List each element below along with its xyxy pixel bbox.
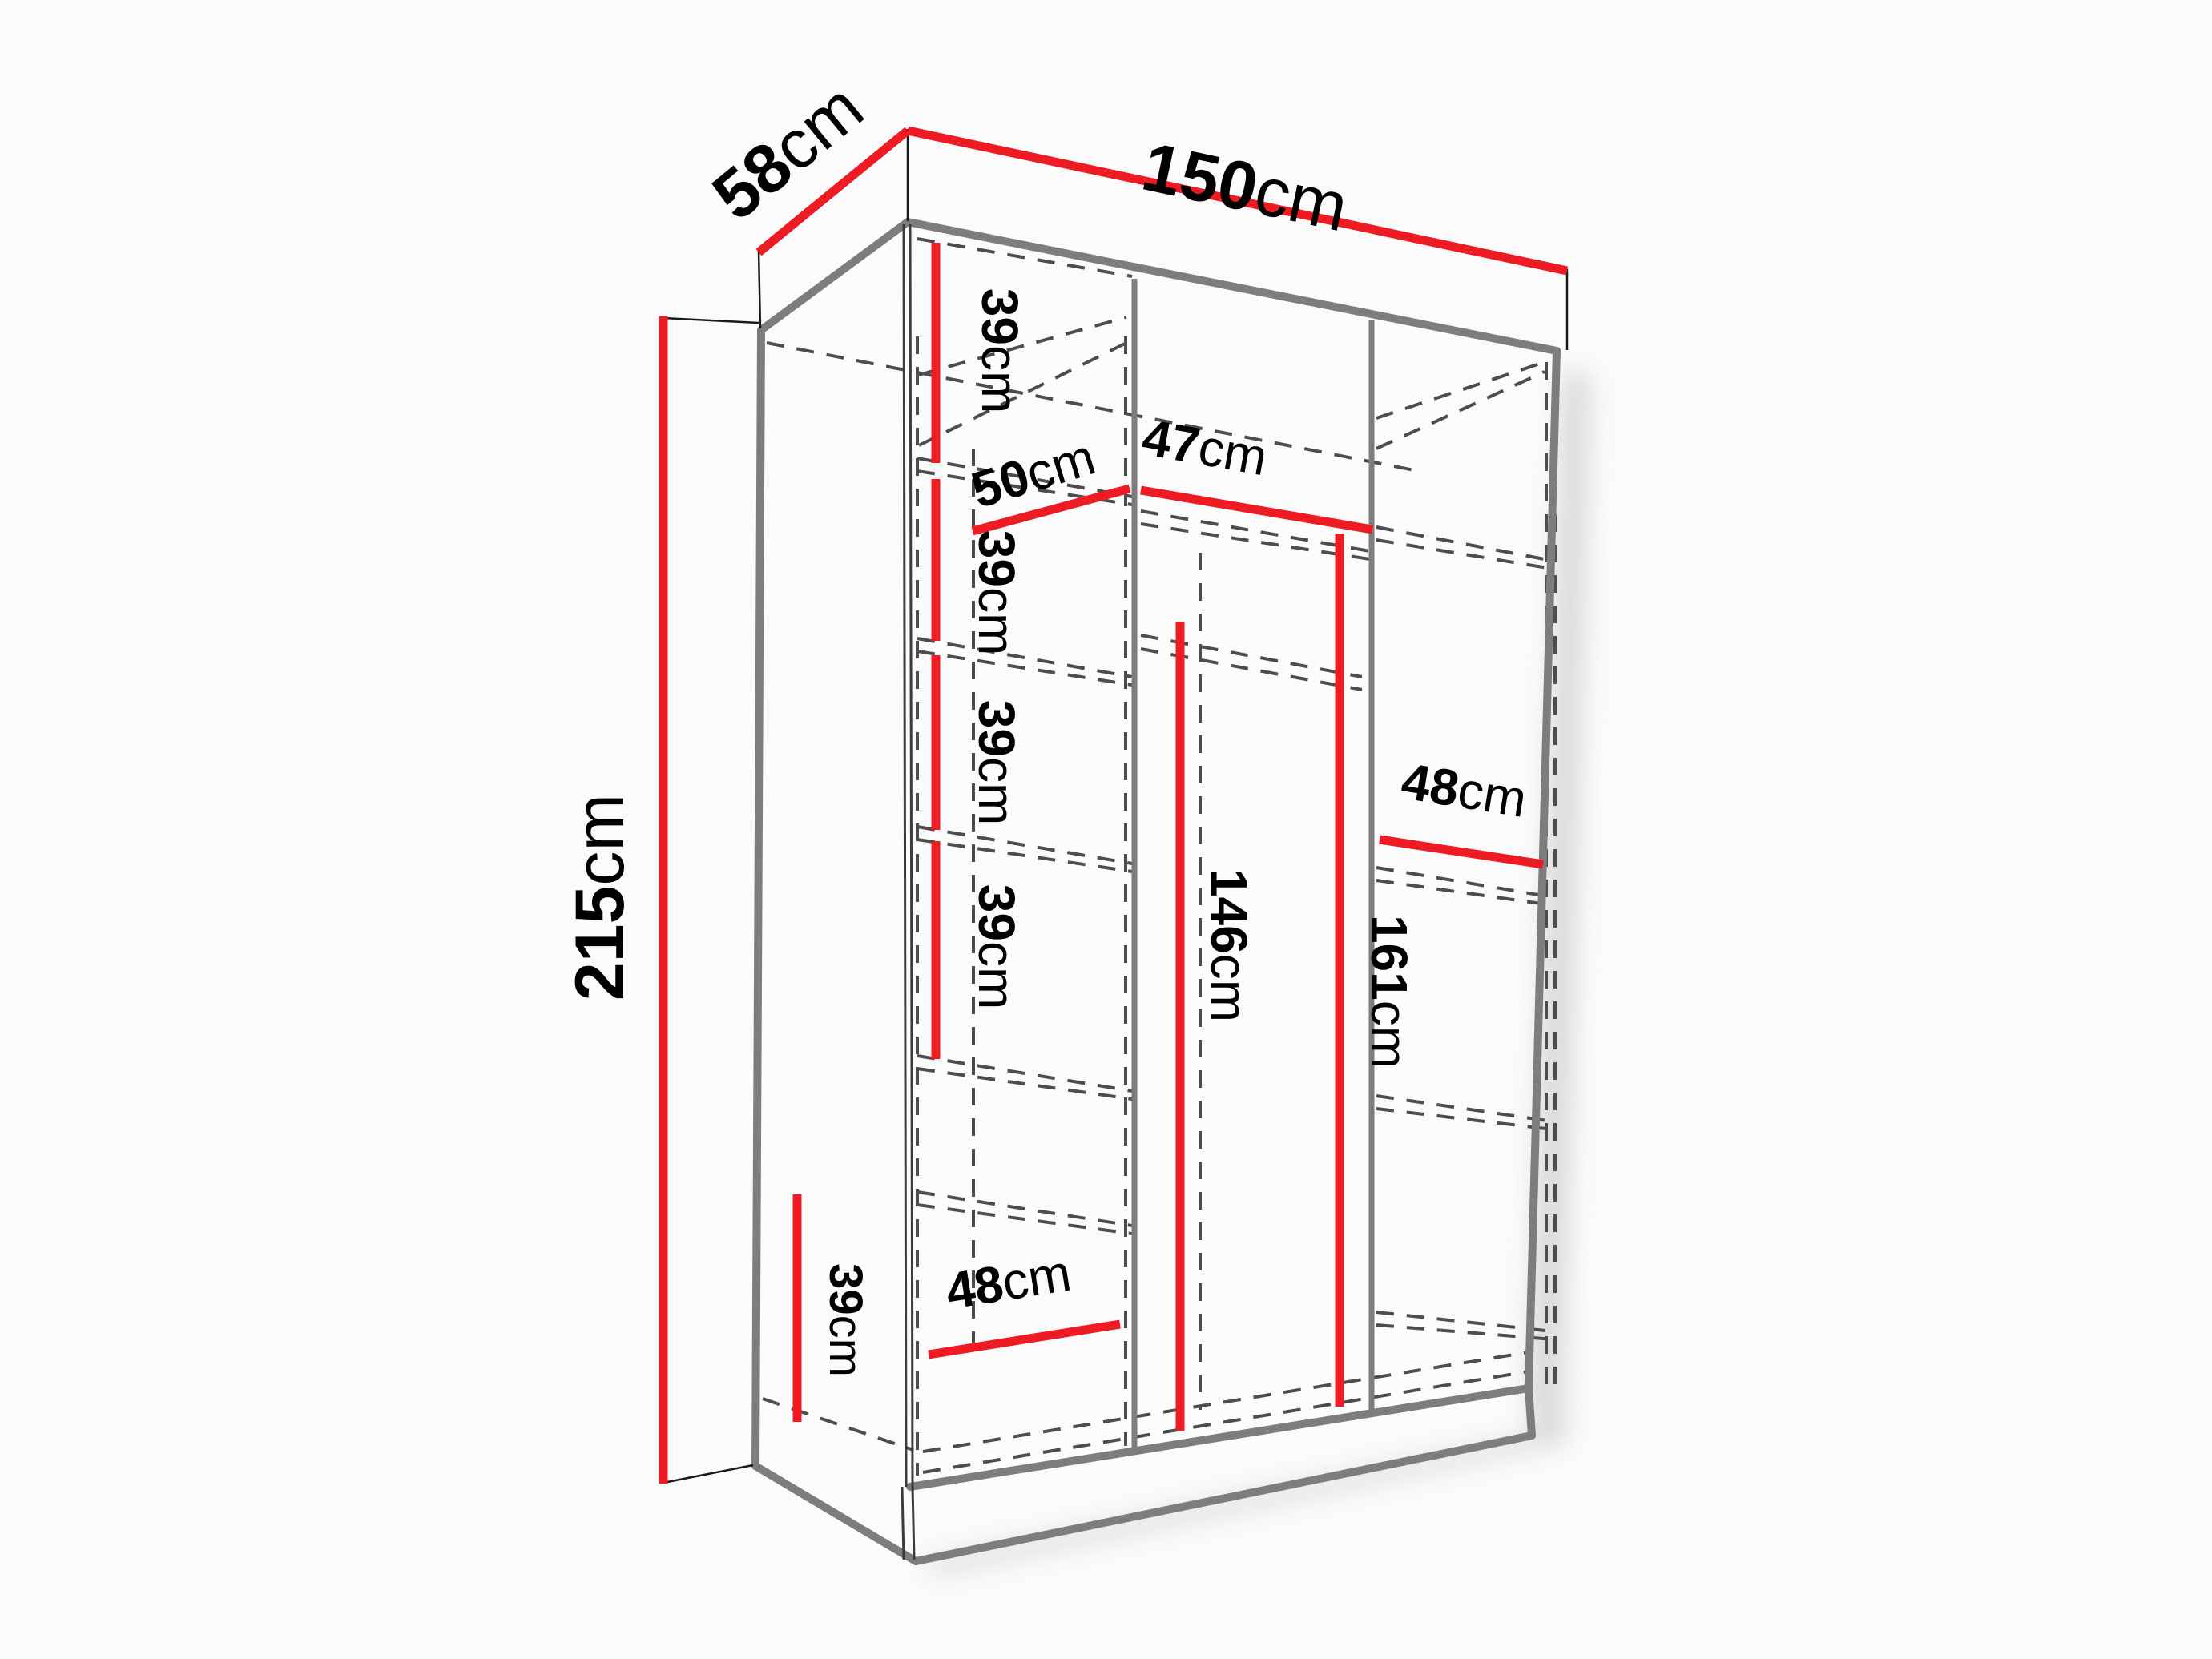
dim-label-height: 215cm	[562, 794, 639, 1001]
plinth-notch-2	[913, 1487, 914, 1560]
dim-line-width-47	[1141, 490, 1372, 530]
dimension-labels: 58cm 150cm 215cm 39cm 39cm 39cm 39cm 50c…	[562, 69, 1530, 1377]
back-top-edge-dashed	[767, 343, 1418, 471]
carcass-bottom-front-edge	[910, 1388, 1529, 1487]
dim-label-hanging-height: 146cm	[1200, 868, 1258, 1022]
dim-line-width-48-bottom	[929, 1324, 1120, 1355]
dim-label-width: 150cm	[1136, 128, 1354, 247]
left-back-edge	[755, 330, 761, 1466]
left-top-edge	[761, 222, 908, 330]
plinth-notch-1	[902, 1487, 904, 1560]
dim-label-left-shelf-1: 39cm	[971, 288, 1029, 414]
diagram-stage: 58cm 150cm 215cm 39cm 39cm 39cm 39cm 50c…	[0, 0, 2212, 1659]
dim-label-left-shelf-bottom: 39cm	[820, 1263, 872, 1377]
left-bottom-edge	[755, 1466, 916, 1561]
dim-label-right-width: 48cm	[1398, 751, 1531, 828]
dim-label-middle-height: 161cm	[1360, 915, 1418, 1069]
front-left-edge-inner	[904, 224, 906, 1487]
dim-label-left-shelf-3: 39cm	[968, 700, 1025, 826]
dim-label-left-shelf-2: 39cm	[968, 530, 1025, 656]
dim-line-width-48-right	[1380, 840, 1543, 864]
front-left-edge-outer	[910, 224, 913, 1487]
plinth-bottom-edge	[916, 1436, 1532, 1561]
wardrobe-diagram: 58cm 150cm 215cm 39cm 39cm 39cm 39cm 50c…	[0, 0, 2212, 1659]
bottom-panel-dashed	[763, 1352, 1529, 1472]
dim-label-left-width-bottom: 48cm	[942, 1243, 1075, 1320]
dim-label-depth: 58cm	[699, 69, 877, 236]
dim-label-left-shelf-4: 39cm	[968, 884, 1025, 1010]
dim-label-middle-width: 47cm	[1138, 408, 1272, 486]
plinth-right-edge	[1529, 1388, 1532, 1436]
